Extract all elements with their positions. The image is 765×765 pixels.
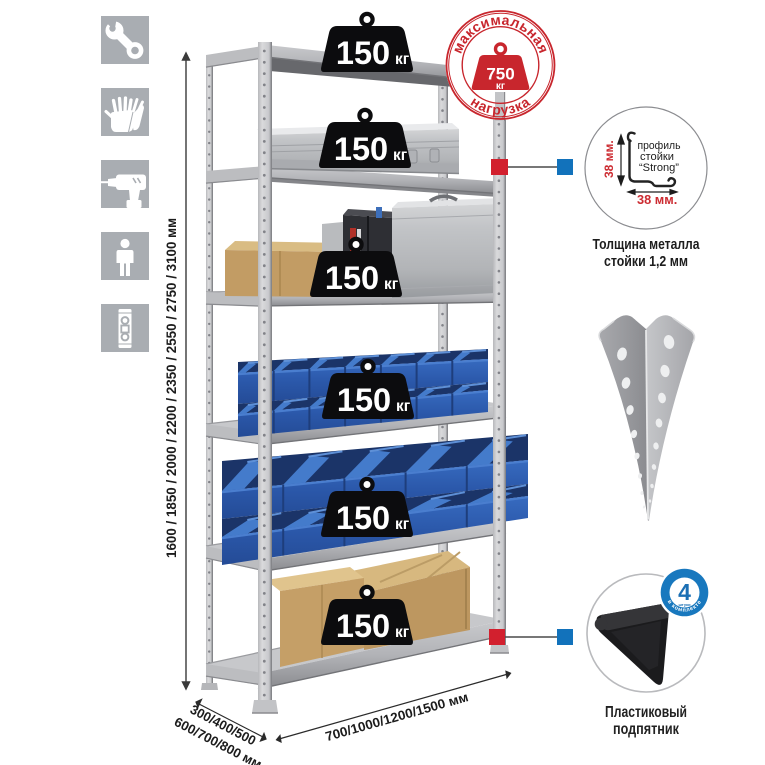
svg-text:кг: кг — [395, 516, 410, 533]
svg-text:“Strong”: “Strong” — [639, 162, 679, 174]
svg-text:150: 150 — [334, 131, 388, 167]
svg-text:150: 150 — [336, 35, 390, 71]
svg-text:150: 150 — [336, 500, 390, 536]
svg-text:кг: кг — [384, 276, 399, 293]
svg-text:штуки: штуки — [678, 602, 691, 607]
svg-text:кг: кг — [496, 81, 505, 92]
svg-text:кг: кг — [393, 147, 408, 164]
svg-text:150: 150 — [337, 382, 391, 418]
svg-text:подпятник: подпятник — [613, 721, 679, 738]
svg-text:кг: кг — [396, 398, 411, 415]
svg-text:кг: кг — [395, 51, 410, 68]
svg-text:стойки 1,2 мм: стойки 1,2 мм — [604, 253, 688, 270]
svg-text:150: 150 — [325, 260, 379, 296]
svg-text:1600 / 1850 / 2000 / 2200 / 23: 1600 / 1850 / 2000 / 2200 / 2350 / 2550 … — [164, 218, 179, 558]
svg-text:38 мм.: 38 мм. — [602, 140, 616, 178]
svg-text:150: 150 — [336, 608, 390, 644]
svg-text:кг: кг — [395, 624, 410, 641]
svg-text:Толщина металла: Толщина металла — [593, 236, 701, 253]
svg-text:Пластиковый: Пластиковый — [605, 704, 687, 721]
svg-text:38 мм.: 38 мм. — [637, 192, 677, 207]
